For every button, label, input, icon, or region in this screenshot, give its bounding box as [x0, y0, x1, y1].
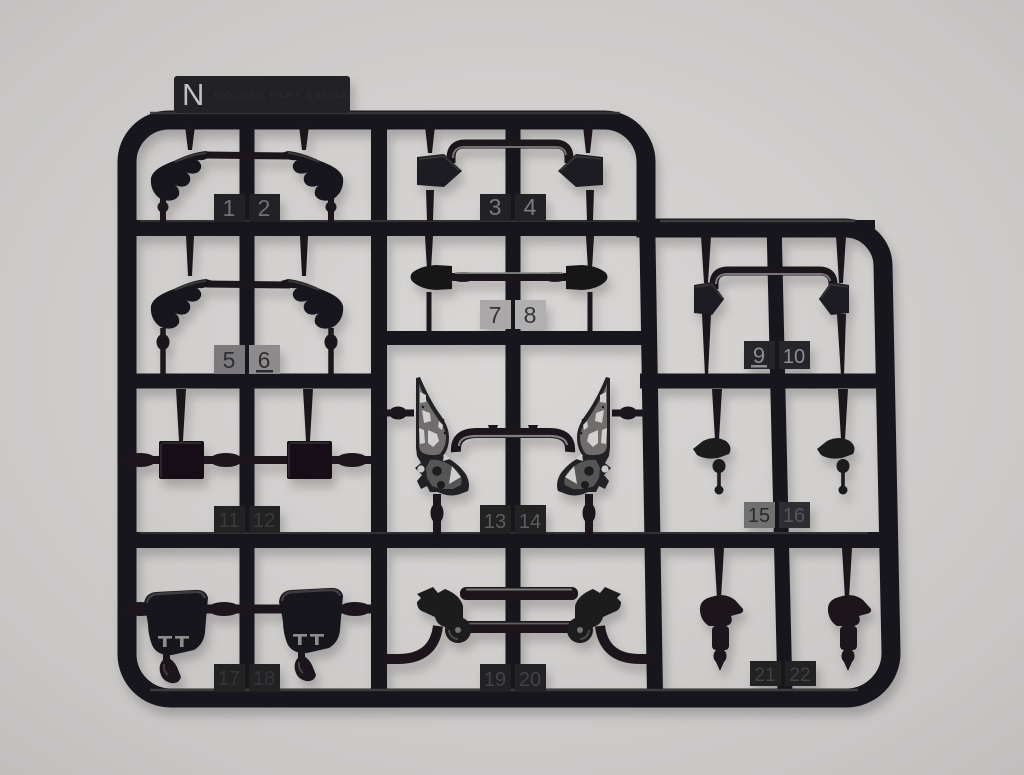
svg-text:10: 10 — [783, 346, 805, 368]
svg-text:22: 22 — [789, 665, 810, 686]
svg-text:14: 14 — [519, 511, 541, 533]
svg-text:12: 12 — [253, 510, 275, 532]
svg-text:19: 19 — [484, 669, 506, 691]
svg-text:15: 15 — [748, 505, 770, 527]
svg-text:17: 17 — [218, 668, 240, 690]
svg-text:18: 18 — [253, 668, 275, 690]
svg-text:N: N — [182, 77, 204, 112]
svg-text:4: 4 — [524, 194, 537, 220]
svg-text:13: 13 — [484, 511, 506, 533]
svg-text:9: 9 — [753, 343, 765, 368]
svg-text:7: 7 — [489, 302, 502, 328]
svg-text:20: 20 — [519, 669, 541, 691]
svg-text:1: 1 — [223, 195, 236, 221]
svg-text:2: 2 — [258, 195, 271, 221]
svg-text:5: 5 — [223, 347, 236, 373]
svg-text:3: 3 — [489, 194, 502, 220]
svg-text:6: 6 — [258, 347, 271, 373]
svg-text:MOLDED PART BANDAI: MOLDED PART BANDAI — [214, 91, 352, 102]
svg-text:11: 11 — [219, 510, 240, 532]
svg-text:16: 16 — [783, 505, 805, 527]
svg-text:8: 8 — [524, 302, 537, 328]
svg-text:21: 21 — [754, 665, 775, 686]
